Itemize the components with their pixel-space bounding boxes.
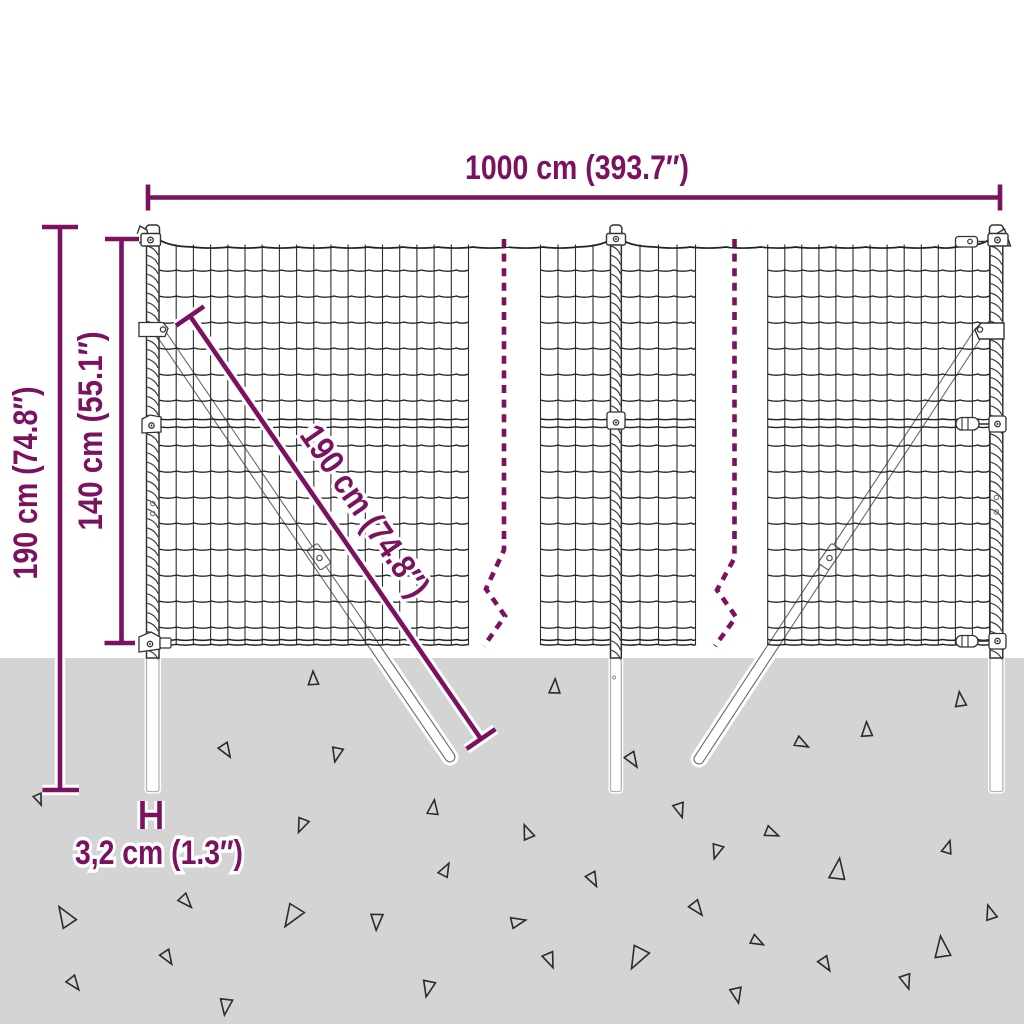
svg-text:140 cm (55.1″): 140 cm (55.1″) <box>72 332 110 531</box>
svg-text:190 cm (74.8″): 190 cm (74.8″) <box>7 387 45 580</box>
svg-text:3,2 cm (1.3″): 3,2 cm (1.3″) <box>75 834 243 872</box>
svg-text:1000 cm (393.7″): 1000 cm (393.7″) <box>465 149 689 187</box>
